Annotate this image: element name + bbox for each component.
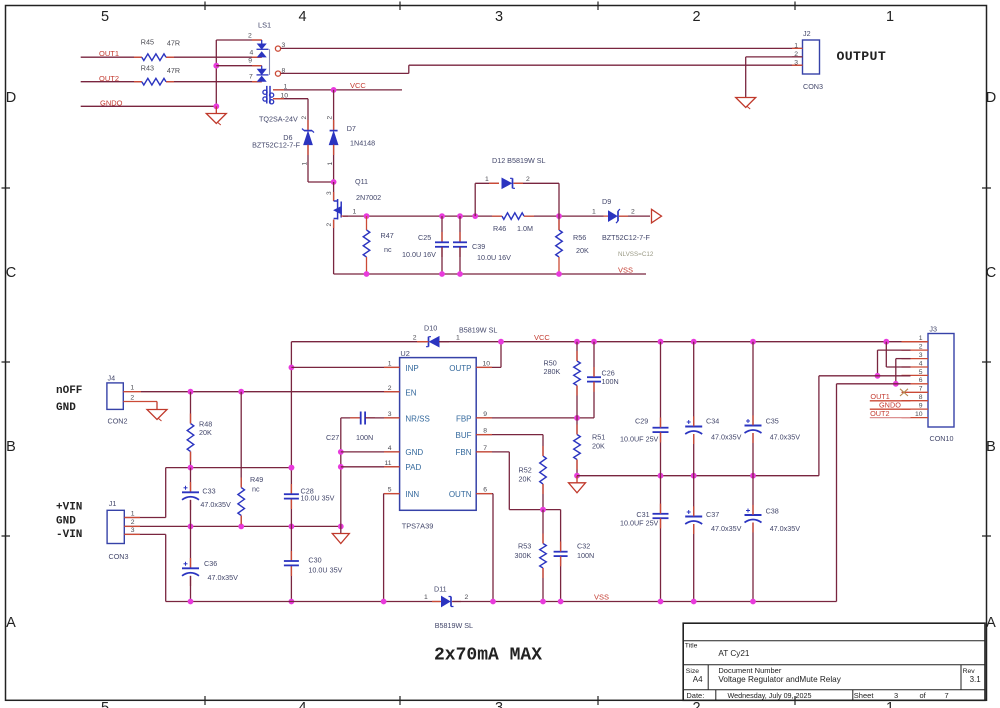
svg-text:1: 1 [424,594,428,601]
svg-text:3: 3 [495,700,503,708]
svg-text:C25: C25 [418,233,431,242]
svg-text:20K: 20K [592,441,605,450]
svg-text:C39: C39 [472,242,485,251]
svg-text:R56: R56 [573,233,586,242]
svg-text:OUTP: OUTP [449,364,471,373]
svg-text:47.0x35V: 47.0x35V [208,573,239,582]
svg-text:TPS7A39: TPS7A39 [402,522,434,531]
svg-text:EN: EN [405,389,416,398]
svg-text:Sheet: Sheet [854,691,875,700]
svg-text:C37: C37 [706,510,719,519]
svg-text:2: 2 [130,395,134,402]
svg-text:Wednesday, July 09, 2025: Wednesday, July 09, 2025 [728,691,812,700]
svg-text:nOFF: nOFF [56,385,82,397]
svg-text:9: 9 [248,58,252,65]
svg-text:10.0UF 25V: 10.0UF 25V [620,518,659,527]
svg-text:A4: A4 [693,675,703,684]
svg-text:3: 3 [131,527,135,534]
svg-text:D10: D10 [424,324,437,333]
svg-text:4: 4 [919,360,923,367]
svg-text:Size: Size [686,668,699,675]
svg-text:10.0U 16V: 10.0U 16V [402,250,436,259]
svg-text:5: 5 [101,9,109,25]
svg-text:FBP: FBP [456,414,472,423]
svg-text:U2: U2 [400,349,409,358]
svg-text:D12 B5819W SL: D12 B5819W SL [492,156,546,165]
svg-text:J1: J1 [109,499,117,508]
svg-text:2: 2 [465,594,469,601]
svg-text:TQ2SA-24V: TQ2SA-24V [259,115,298,124]
svg-text:7: 7 [249,74,253,81]
svg-text:B: B [6,439,16,455]
svg-text:8: 8 [483,428,487,435]
svg-text:2: 2 [526,176,530,183]
svg-text:VSS: VSS [594,592,609,601]
svg-text:D11: D11 [434,585,447,594]
svg-text:7: 7 [483,445,487,452]
svg-text:7: 7 [919,386,923,393]
svg-text:100N: 100N [602,377,619,386]
svg-text:2: 2 [301,116,308,120]
svg-text:100N: 100N [577,551,594,560]
svg-text:B5819W SL: B5819W SL [435,621,473,630]
svg-text:Q11: Q11 [355,177,368,186]
svg-text:2: 2 [248,33,252,40]
svg-text:2: 2 [692,700,700,708]
svg-text:20K: 20K [199,428,212,437]
svg-text:A: A [986,615,996,631]
svg-text:1: 1 [919,335,923,342]
svg-text:of: of [920,691,927,700]
svg-text:C35: C35 [766,417,779,426]
svg-text:NLVSS=C12: NLVSS=C12 [618,251,654,258]
svg-text:BZT52C12-7-F: BZT52C12-7-F [252,141,301,150]
svg-text:3: 3 [495,9,503,25]
svg-text:47.0x35V: 47.0x35V [200,500,231,509]
svg-text:20K: 20K [519,475,532,484]
svg-text:7: 7 [945,691,949,700]
svg-text:D9: D9 [602,197,611,206]
svg-text:R43: R43 [141,64,154,73]
svg-text:10.0U 35V: 10.0U 35V [308,565,342,574]
svg-text:47.0x35V: 47.0x35V [770,432,801,441]
svg-text:4: 4 [250,50,254,57]
svg-text:J3: J3 [929,325,937,334]
svg-text:nc: nc [384,245,392,254]
svg-text:2x70mA MAX: 2x70mA MAX [434,646,542,666]
svg-text:OUT2: OUT2 [870,409,889,418]
svg-text:20K: 20K [576,246,589,255]
svg-text:2: 2 [413,335,417,342]
svg-text:R45: R45 [141,38,154,47]
svg-text:C: C [6,265,16,281]
svg-text:CON10: CON10 [930,434,954,443]
svg-text:CON3: CON3 [109,552,129,561]
svg-text:nc: nc [252,485,260,494]
svg-text:5: 5 [919,369,923,376]
svg-text:R49: R49 [250,475,263,484]
svg-text:100N: 100N [356,433,373,442]
svg-text:FBN: FBN [456,448,472,457]
svg-text:2: 2 [631,209,635,216]
svg-text:47.0x35V: 47.0x35V [711,524,742,533]
svg-text:1: 1 [388,360,392,367]
svg-text:A: A [6,615,16,631]
svg-text:47.0x35V: 47.0x35V [711,433,742,442]
svg-text:INN: INN [405,490,419,499]
svg-text:6: 6 [919,377,923,384]
svg-text:1.0M: 1.0M [517,224,533,233]
svg-text:10: 10 [915,411,923,418]
svg-text:Voltage Regulator andMute Rela: Voltage Regulator andMute Relay [718,675,841,684]
svg-text:GND: GND [56,515,76,527]
svg-text:280K: 280K [544,367,561,376]
svg-text:LS1: LS1 [258,21,271,30]
svg-text:R52: R52 [519,465,532,474]
svg-text:4: 4 [298,700,306,708]
svg-text:Date:: Date: [686,691,704,700]
svg-text:2: 2 [919,344,923,351]
svg-text:1: 1 [131,510,135,517]
svg-text:PAD: PAD [405,463,421,472]
svg-text:3: 3 [794,59,798,66]
svg-text:6: 6 [483,487,487,494]
svg-text:47.0x35V: 47.0x35V [770,524,801,533]
svg-text:NR/SS: NR/SS [405,414,429,423]
svg-text:D: D [6,90,16,106]
svg-text:C36: C36 [204,559,217,568]
svg-text:2: 2 [326,116,333,120]
svg-text:4: 4 [298,9,306,25]
svg-text:10: 10 [483,360,491,367]
svg-text:300K: 300K [515,551,532,560]
svg-text:9: 9 [483,411,487,418]
svg-text:C32: C32 [577,542,590,551]
svg-text:R51: R51 [592,432,605,441]
svg-text:3: 3 [894,691,898,700]
svg-text:C27: C27 [326,433,339,442]
svg-text:BZT52C12-7-F: BZT52C12-7-F [602,233,651,242]
svg-text:J4: J4 [108,374,116,383]
svg-text:GND: GND [405,448,423,457]
svg-text:2: 2 [131,519,135,526]
svg-text:C33: C33 [202,486,215,495]
svg-text:VCC: VCC [350,81,366,90]
svg-text:R53: R53 [518,542,531,551]
svg-text:11: 11 [384,460,391,467]
svg-text:B: B [986,439,996,455]
svg-text:R46: R46 [493,224,506,233]
svg-text:5: 5 [388,487,392,494]
svg-text:VCC: VCC [534,333,550,342]
svg-text:INP: INP [405,364,418,373]
svg-text:CON2: CON2 [108,417,128,426]
svg-text:1: 1 [886,700,894,708]
svg-text:B5819W SL: B5819W SL [459,326,497,335]
svg-text:9: 9 [919,403,923,410]
svg-text:3: 3 [388,411,392,418]
svg-text:47R: 47R [167,66,180,75]
svg-text:C: C [986,265,996,281]
svg-text:47R: 47R [167,39,180,48]
svg-text:D: D [986,90,996,106]
svg-text:CON3: CON3 [803,82,823,91]
svg-text:3: 3 [919,352,923,359]
svg-text:2: 2 [326,223,333,227]
svg-text:D7: D7 [347,124,356,133]
svg-text:C29: C29 [635,417,648,426]
svg-text:-VIN: -VIN [56,529,82,541]
svg-text:Rev: Rev [963,668,976,675]
svg-text:5: 5 [101,700,109,708]
svg-text:OUTPUT: OUTPUT [837,49,887,64]
svg-text:1: 1 [886,9,894,25]
svg-text:1: 1 [485,176,489,183]
svg-text:1: 1 [456,335,460,342]
svg-text:VSS: VSS [618,266,633,275]
svg-text:AT Cy21: AT Cy21 [718,649,750,658]
svg-text:3: 3 [326,191,333,195]
svg-text:8: 8 [919,394,923,401]
svg-text:BUF: BUF [456,431,472,440]
svg-text:OUTN: OUTN [449,490,472,499]
svg-text:J2: J2 [803,29,811,38]
svg-text:10.0UF 25V: 10.0UF 25V [620,435,659,444]
svg-text:2: 2 [692,9,700,25]
svg-text:GND: GND [56,402,76,414]
svg-text:1: 1 [794,43,798,50]
svg-text:C30: C30 [308,556,321,565]
svg-text:C34: C34 [706,417,719,426]
svg-text:Title: Title [685,643,698,650]
svg-text:+VIN: +VIN [56,502,82,514]
svg-text:2N7002: 2N7002 [356,193,381,202]
svg-text:4: 4 [388,445,392,452]
svg-text:3.1: 3.1 [970,675,982,684]
svg-text:R47: R47 [381,231,394,240]
svg-text:10.0U 16V: 10.0U 16V [477,253,511,262]
svg-text:C38: C38 [766,507,779,516]
svg-text:1: 1 [353,209,357,216]
svg-text:Document Number: Document Number [718,666,781,675]
svg-text:1N4148: 1N4148 [350,139,375,148]
svg-text:1: 1 [130,385,134,392]
svg-text:1: 1 [592,209,596,216]
svg-text:10.0U 35V: 10.0U 35V [301,494,335,503]
